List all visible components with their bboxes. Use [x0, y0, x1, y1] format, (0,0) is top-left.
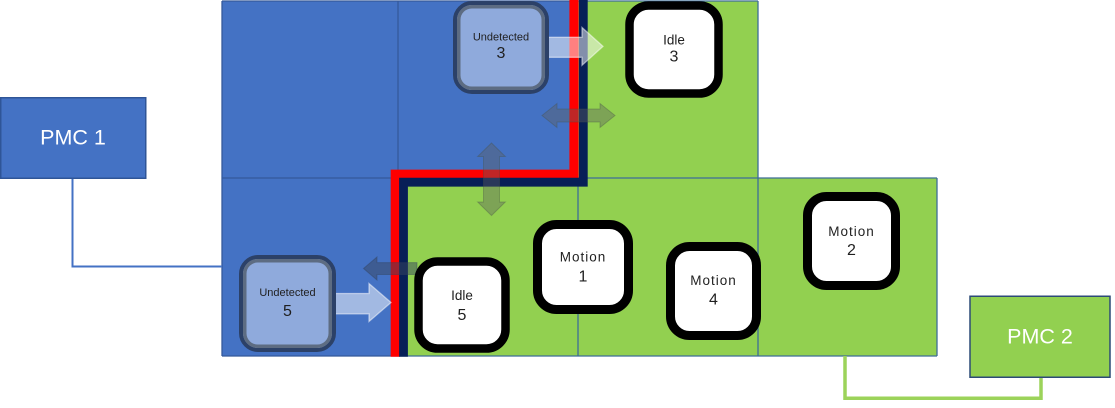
- svg-text:Motion: Motion: [690, 273, 737, 288]
- svg-text:3: 3: [497, 45, 506, 62]
- svg-text:Motion: Motion: [560, 250, 607, 265]
- svg-text:2: 2: [847, 242, 856, 259]
- svg-text:5: 5: [283, 303, 292, 320]
- svg-text:Idle: Idle: [663, 33, 685, 48]
- svg-text:Undetected: Undetected: [259, 287, 315, 299]
- svg-text:Undetected: Undetected: [473, 32, 529, 44]
- svg-text:5: 5: [458, 307, 467, 324]
- svg-text:Idle: Idle: [451, 288, 473, 303]
- svg-text:PMC 1: PMC 1: [40, 126, 106, 150]
- svg-text:3: 3: [670, 48, 679, 65]
- svg-text:Motion: Motion: [828, 224, 875, 239]
- svg-text:1: 1: [579, 268, 588, 285]
- svg-text:4: 4: [709, 291, 718, 308]
- svg-text:PMC 2: PMC 2: [1007, 325, 1073, 349]
